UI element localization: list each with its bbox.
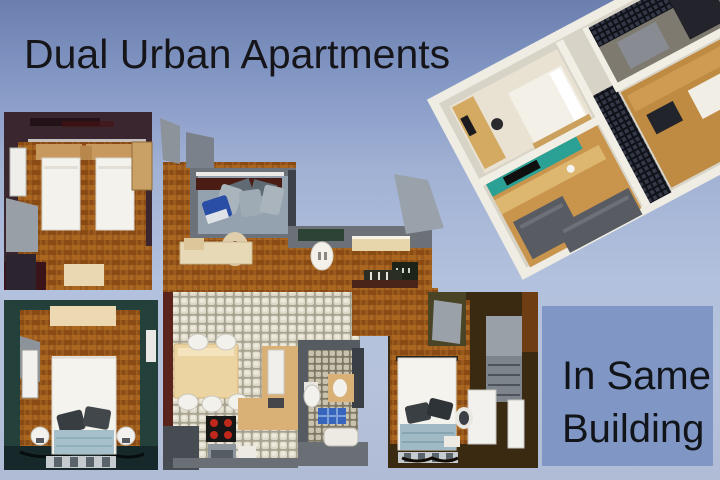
tub [324, 428, 358, 446]
window [432, 300, 462, 344]
stove [206, 416, 236, 442]
sink [333, 379, 347, 397]
title: Dual Urban Apartments [24, 30, 464, 78]
caption-line-1: In Same [542, 306, 713, 403]
door-swing [394, 174, 444, 234]
chair [188, 334, 208, 350]
room-twin-bedroom [4, 112, 152, 290]
blanket [54, 430, 114, 454]
room-hall-living [160, 118, 444, 292]
door [22, 350, 38, 398]
nightstand [80, 146, 92, 160]
door-rug [64, 264, 104, 286]
dresser [50, 306, 116, 326]
white-stool [311, 242, 333, 270]
room-double-bedroom-right [352, 280, 538, 468]
wardrobe [486, 316, 522, 356]
floor-plan-2d [4, 112, 538, 470]
caption-line-2: Building [542, 403, 713, 456]
hall-counter [352, 239, 410, 251]
room-kitchen-dining [163, 292, 368, 470]
living-nook [190, 168, 296, 238]
shelf [508, 400, 524, 448]
fridge [268, 350, 284, 394]
caption-panel: In Same Building [542, 306, 713, 466]
room-bathroom [298, 340, 368, 466]
wardrobe [10, 148, 26, 196]
room-double-bedroom-left [4, 300, 158, 470]
render-3d [433, 0, 720, 276]
toilet [304, 385, 320, 407]
listing-cover-image: Dual Urban Apartments In Same Building [0, 0, 720, 480]
cabinet [132, 142, 152, 190]
